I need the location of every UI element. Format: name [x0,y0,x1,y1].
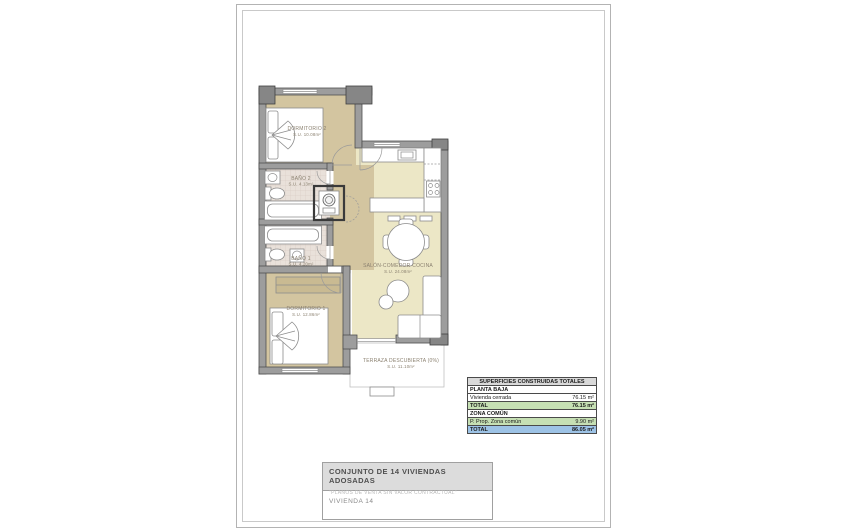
pillow-icon [272,340,283,364]
room-area: S.U. 11.10m² [387,364,415,369]
row-label: TOTAL [470,403,488,409]
title-block-header: CONJUNTO DE 14 VIVIENDAS ADOSADAS "PLANO… [323,463,492,491]
coffee-table-icon [379,295,393,309]
kitchen-peninsula [370,198,424,212]
terraza-step [370,387,394,396]
pillow-icon [268,111,278,133]
row-label: P. Prop. Zona común [470,419,521,425]
title-block: CONJUNTO DE 14 VIVIENDAS ADOSADAS "PLANO… [322,462,493,520]
row-label: ZONA COMÚN [470,411,508,417]
row-label: TOTAL [470,427,488,433]
dining-table-icon [388,224,425,261]
sofa-icon [423,276,441,317]
table-row: TOTAL 86.05 m² [467,425,597,434]
hall-floor [330,165,374,270]
sink-icon [265,171,280,184]
stool-icon [420,216,432,221]
room-area: S.U. 4.13m² [288,182,313,187]
areas-table: SUPERFICIES CONSTRUIDAS TOTALES PLANTA B… [467,377,597,434]
room-area: S.U. 4.20m² [288,262,313,267]
areas-table-title-text: SUPERFICIES CONSTRUIDAS TOTALES [479,379,584,385]
room-area: S.U. 24.08m² [384,269,412,274]
row-value: 76.15 m² [572,395,594,401]
row-label: PLANTA BAJA [470,387,508,393]
row-value: 86.05 m² [572,427,594,433]
row-value: 9.90 m² [575,419,594,425]
stool-icon [388,216,400,221]
floor-plan: DORMITORIO 2 S.U. 10.08m² BAÑO 2 S.U. 4.… [0,0,850,530]
project-title: CONJUNTO DE 14 VIVIENDAS ADOSADAS [329,467,486,485]
room-area: S.U. 12.86m² [292,312,320,317]
row-value: 76.15 m² [572,403,594,409]
room-area: S.U. 10.08m² [293,132,321,137]
row-label: Vivienda cerrada [470,395,511,401]
room-label: SALÓN-COMEDOR-COCINA [363,262,433,269]
pillow-icon [268,137,278,159]
sofa-icon [398,315,441,338]
